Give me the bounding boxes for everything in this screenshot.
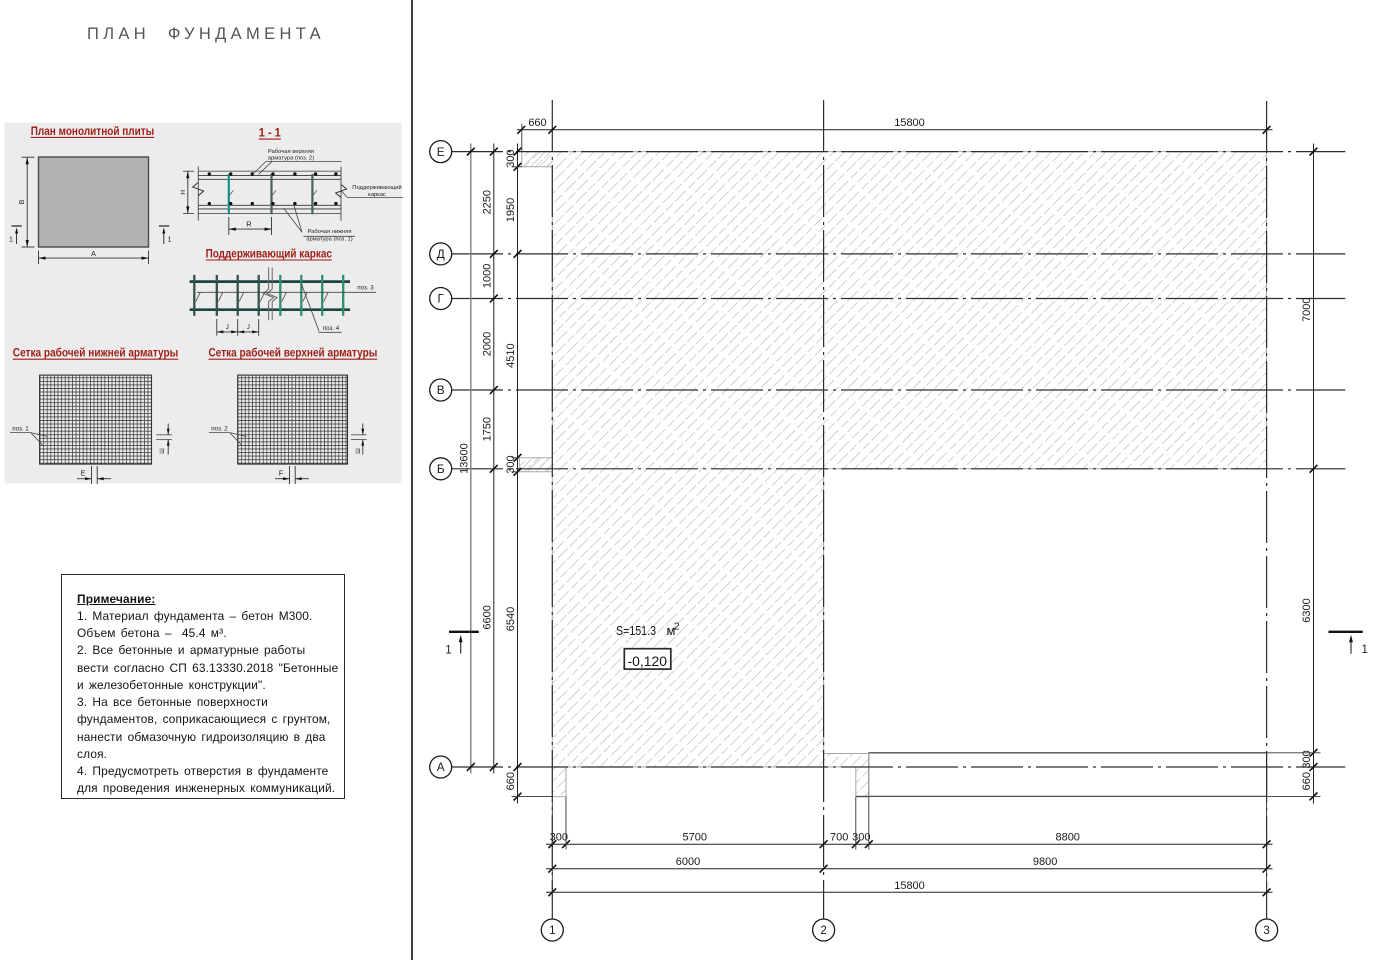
svg-text:А: А — [91, 251, 96, 258]
svg-text:Н: Н — [180, 190, 187, 195]
svg-text:1750: 1750 — [481, 417, 493, 441]
svg-text:Поддерживающий каркас: Поддерживающий каркас — [206, 247, 333, 260]
svg-text:1: 1 — [168, 237, 172, 244]
svg-text:План монолитной плиты: План монолитной плиты — [31, 125, 155, 138]
svg-text:J: J — [247, 324, 250, 331]
svg-text:2000: 2000 — [481, 332, 493, 356]
svg-text:E: E — [81, 471, 86, 478]
svg-text:В: В — [19, 199, 26, 204]
svg-text:6300: 6300 — [1301, 598, 1313, 622]
svg-text:В: В — [437, 383, 445, 397]
svg-text:поз. 4: поз. 4 — [323, 325, 340, 332]
svg-text:660: 660 — [505, 772, 517, 790]
svg-text:F: F — [279, 471, 283, 478]
svg-text:1: 1 — [1362, 644, 1368, 656]
svg-text:660: 660 — [1301, 772, 1313, 790]
svg-text:15800: 15800 — [894, 880, 925, 892]
svg-text:2250: 2250 — [481, 190, 493, 214]
svg-text:арматура (поз. 1): арматура (поз. 1) — [306, 237, 352, 243]
svg-text:700: 700 — [830, 831, 848, 843]
svg-text:Г: Г — [438, 292, 445, 306]
svg-text:1 - 1: 1 - 1 — [259, 127, 282, 140]
svg-text:15800: 15800 — [894, 117, 925, 129]
svg-text:Е: Е — [437, 145, 445, 159]
svg-text:J: J — [226, 324, 229, 331]
svg-text:6540: 6540 — [505, 607, 517, 631]
svg-text:Поддерживающий: Поддерживающий — [352, 184, 401, 191]
svg-text:300: 300 — [852, 831, 870, 843]
svg-text:5700: 5700 — [683, 831, 707, 843]
svg-text:1: 1 — [445, 645, 451, 657]
svg-text:1000: 1000 — [481, 264, 493, 288]
svg-text:Рабочая нижняя: Рабочая нижняя — [307, 229, 351, 235]
svg-text:1: 1 — [9, 237, 13, 244]
svg-text:А: А — [437, 760, 445, 774]
svg-text:R: R — [246, 219, 252, 228]
svg-text:3: 3 — [1263, 925, 1269, 937]
svg-text:Б: Б — [437, 462, 445, 476]
svg-text:поз. 1: поз. 1 — [12, 425, 29, 432]
svg-text:4510: 4510 — [505, 343, 517, 367]
svg-text:-0,120: -0,120 — [628, 654, 668, 670]
svg-text:Ш: Ш — [160, 448, 166, 454]
svg-text:поз. 2: поз. 2 — [211, 425, 228, 432]
svg-text:S=151.3: S=151.3 — [616, 623, 656, 638]
svg-text:6600: 6600 — [481, 605, 493, 629]
svg-text:поз. 3: поз. 3 — [357, 284, 374, 291]
svg-text:Рабочая верхняя: Рабочая верхняя — [268, 149, 314, 155]
svg-text:Сетка рабочей нижней арматуры: Сетка рабочей нижней арматуры — [13, 347, 179, 360]
svg-text:Сетка рабочей верхней арматуры: Сетка рабочей верхней арматуры — [209, 347, 378, 360]
svg-text:арматура (поз. 2): арматура (поз. 2) — [268, 156, 314, 162]
svg-text:6000: 6000 — [676, 856, 700, 868]
svg-text:1: 1 — [549, 925, 555, 937]
svg-text:2: 2 — [820, 925, 826, 937]
svg-text:2: 2 — [674, 622, 680, 633]
svg-text:1950: 1950 — [505, 198, 517, 222]
svg-text:7000: 7000 — [1301, 297, 1313, 321]
svg-text:Д: Д — [437, 247, 445, 261]
svg-text:Ш: Ш — [356, 448, 362, 454]
svg-text:300: 300 — [505, 149, 517, 167]
svg-text:13600: 13600 — [458, 443, 470, 474]
svg-text:8800: 8800 — [1055, 831, 1079, 843]
svg-text:660: 660 — [528, 117, 546, 129]
svg-text:9800: 9800 — [1033, 856, 1057, 868]
